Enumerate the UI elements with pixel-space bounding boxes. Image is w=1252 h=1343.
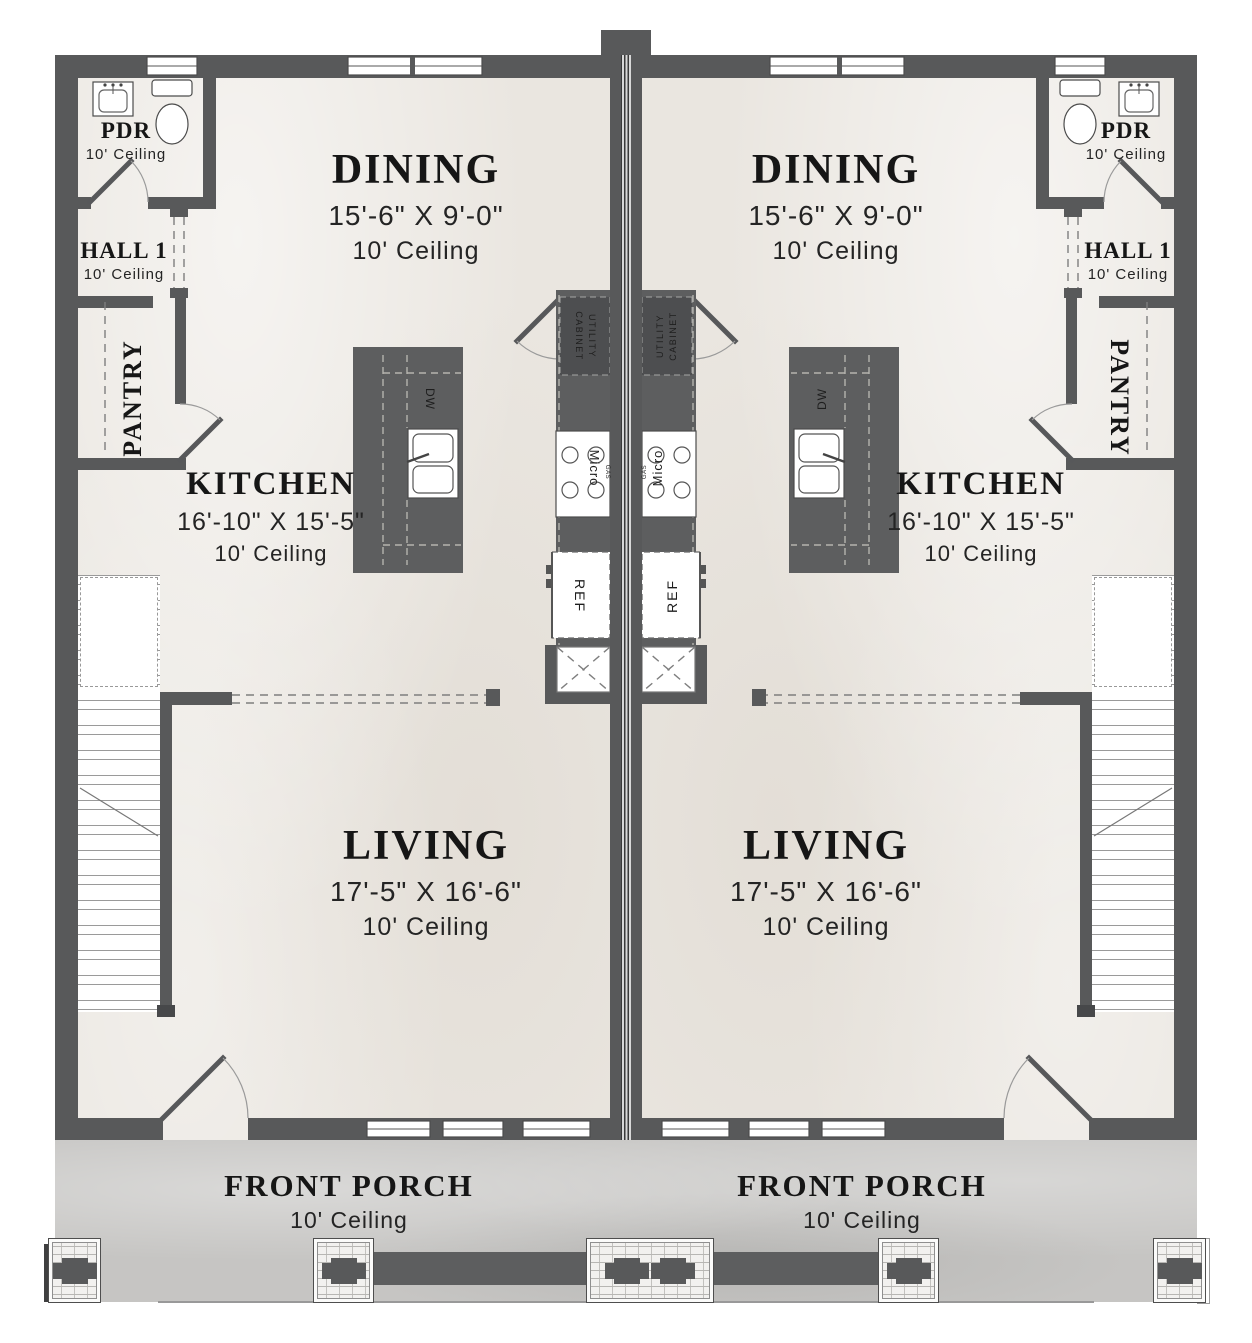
room-label-dining-left: DINING 15'-6" X 9'-0" 10' Ceiling bbox=[266, 146, 566, 266]
party-wall-cap bbox=[601, 30, 651, 55]
sink-icon bbox=[93, 82, 133, 116]
microwave-label-left: Micro bbox=[587, 443, 603, 493]
room-name: DINING bbox=[686, 146, 986, 194]
dishwasher-label-right: DW bbox=[815, 384, 829, 414]
room-dims: 16'-10" X 15'-5" bbox=[121, 508, 421, 537]
porch-column bbox=[313, 1238, 374, 1303]
room-name: FRONT PORCH bbox=[199, 1168, 499, 1204]
room-name: PDR bbox=[51, 118, 201, 144]
room-label-living-right: LIVING 17'-5" X 16'-6" 10' Ceiling bbox=[676, 822, 976, 942]
utility-cabinet-label-left: UTILITY CABINET bbox=[573, 291, 597, 381]
porch-column-double bbox=[586, 1238, 714, 1303]
room-ceiling: 10' Ceiling bbox=[686, 237, 986, 266]
sink-icon bbox=[1119, 82, 1159, 116]
room-dims: 17'-5" X 16'-6" bbox=[276, 876, 576, 908]
room-label-pantry-left: PANTRY bbox=[118, 328, 148, 468]
utility-cabinet-label-right: UTILITY CABINET bbox=[655, 291, 679, 381]
room-name: HALL 1 bbox=[49, 238, 199, 264]
room-dims: 15'-6" X 9'-0" bbox=[686, 200, 986, 232]
room-ceiling: 10' Ceiling bbox=[831, 541, 1131, 566]
porch-column bbox=[878, 1238, 939, 1303]
room-ceiling: 10' Ceiling bbox=[199, 1207, 499, 1233]
room-ceiling: 10' Ceiling bbox=[712, 1207, 1012, 1233]
room-name: LIVING bbox=[676, 822, 976, 870]
room-ceiling: 10' Ceiling bbox=[1053, 266, 1203, 283]
room-ceiling: 10' Ceiling bbox=[266, 237, 566, 266]
room-dims: 17'-5" X 16'-6" bbox=[676, 876, 976, 908]
porch-column bbox=[1153, 1238, 1206, 1303]
room-name: DINING bbox=[266, 146, 566, 194]
room-name: FRONT PORCH bbox=[712, 1168, 1012, 1204]
room-ceiling: 10' Ceiling bbox=[121, 541, 421, 566]
room-name: HALL 1 bbox=[1053, 238, 1203, 264]
room-dims: 16'-10" X 15'-5" bbox=[831, 508, 1131, 537]
room-ceiling: 10' Ceiling bbox=[276, 913, 576, 942]
room-label-porch-left: FRONT PORCH 10' Ceiling bbox=[199, 1168, 499, 1233]
gas-label-right: GAS bbox=[641, 460, 649, 484]
room-label-hall-left: HALL 1 10' Ceiling bbox=[49, 238, 199, 284]
party-wall bbox=[610, 55, 642, 1245]
dishwasher-label-left: DW bbox=[423, 384, 437, 414]
gas-label-left: GAS bbox=[603, 460, 611, 484]
room-name: LIVING bbox=[276, 822, 576, 870]
room-label-pdr-right: PDR 10' Ceiling bbox=[1051, 118, 1201, 164]
room-label-kitchen-left: KITCHEN 16'-10" X 15'-5" 10' Ceiling bbox=[121, 466, 421, 566]
porch-column bbox=[48, 1238, 101, 1303]
room-ceiling: 10' Ceiling bbox=[676, 913, 976, 942]
room-label-living-left: LIVING 17'-5" X 16'-6" 10' Ceiling bbox=[276, 822, 576, 942]
floor-plan: DINING 15'-6" X 9'-0" 10' Ceiling KITCHE… bbox=[0, 0, 1252, 1343]
room-label-kitchen-right: KITCHEN 16'-10" X 15'-5" 10' Ceiling bbox=[831, 466, 1131, 566]
stair-break-line bbox=[1094, 788, 1172, 836]
room-ceiling: 10' Ceiling bbox=[1051, 146, 1201, 163]
room-ceiling: 10' Ceiling bbox=[49, 266, 199, 283]
room-dims: 15'-6" X 9'-0" bbox=[266, 200, 566, 232]
room-name: KITCHEN bbox=[831, 466, 1131, 504]
refrigerator-label-left: REF bbox=[572, 574, 588, 618]
room-label-dining-right: DINING 15'-6" X 9'-0" 10' Ceiling bbox=[686, 146, 986, 266]
room-name: PDR bbox=[1051, 118, 1201, 144]
room-label-pdr-left: PDR 10' Ceiling bbox=[51, 118, 201, 164]
refrigerator-label-right: REF bbox=[664, 574, 680, 618]
room-label-pantry-right: PANTRY bbox=[1104, 328, 1134, 468]
room-name: KITCHEN bbox=[121, 466, 421, 504]
room-label-porch-right: FRONT PORCH 10' Ceiling bbox=[712, 1168, 1012, 1233]
microwave-label-right: Micro bbox=[649, 443, 665, 493]
room-ceiling: 10' Ceiling bbox=[51, 146, 201, 163]
stair-break-line bbox=[80, 788, 158, 836]
room-label-hall-right: HALL 1 10' Ceiling bbox=[1053, 238, 1203, 284]
